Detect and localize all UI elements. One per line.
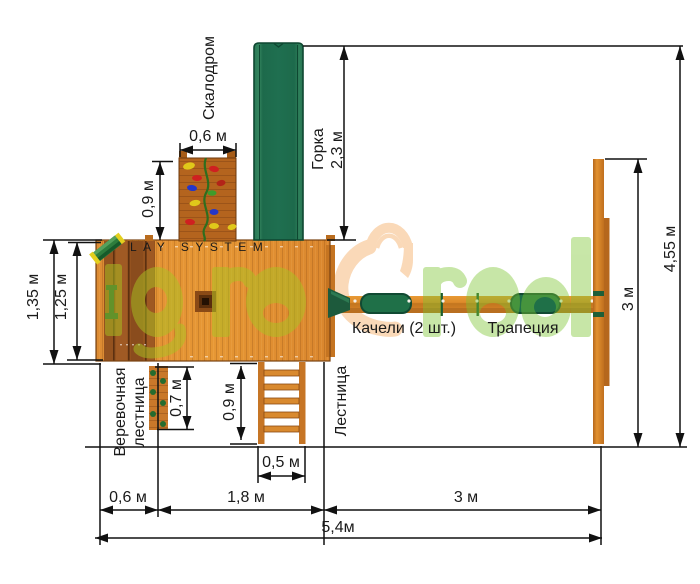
svg-text:1,35 м: 1,35 м <box>25 274 42 321</box>
svg-text:Трапеция: Трапеция <box>488 320 559 337</box>
svg-text:0,5 м: 0,5 м <box>262 454 300 471</box>
svg-text:Скалодром: Скалодром <box>201 36 218 120</box>
svg-text:Веревочная: Веревочная <box>112 368 129 457</box>
svg-text:0,6 м: 0,6 м <box>189 128 227 145</box>
svg-text:0,9 м: 0,9 м <box>221 383 238 421</box>
svg-text:4,55 м: 4,55 м <box>662 226 679 273</box>
svg-text:Качели (2 шт.): Качели (2 шт.) <box>352 320 456 337</box>
svg-text:Горка: Горка <box>310 128 327 170</box>
svg-text:LAY SYSTEM: LAY SYSTEM <box>130 240 269 254</box>
svg-text:лестница: лестница <box>131 377 148 447</box>
svg-text:0,9 м: 0,9 м <box>140 180 157 218</box>
svg-text:2,3 м: 2,3 м <box>329 131 346 169</box>
svg-text:3 м: 3 м <box>620 287 637 311</box>
svg-text:0,7 м: 0,7 м <box>168 379 185 417</box>
svg-text:5,4м: 5,4м <box>321 519 354 536</box>
svg-text:1,8 м: 1,8 м <box>227 489 265 506</box>
svg-text:1,25 м: 1,25 м <box>53 274 70 321</box>
svg-text:Лестница: Лестница <box>333 366 350 437</box>
svg-text:0,6 м: 0,6 м <box>109 489 147 506</box>
svg-text:3 м: 3 м <box>454 489 478 506</box>
